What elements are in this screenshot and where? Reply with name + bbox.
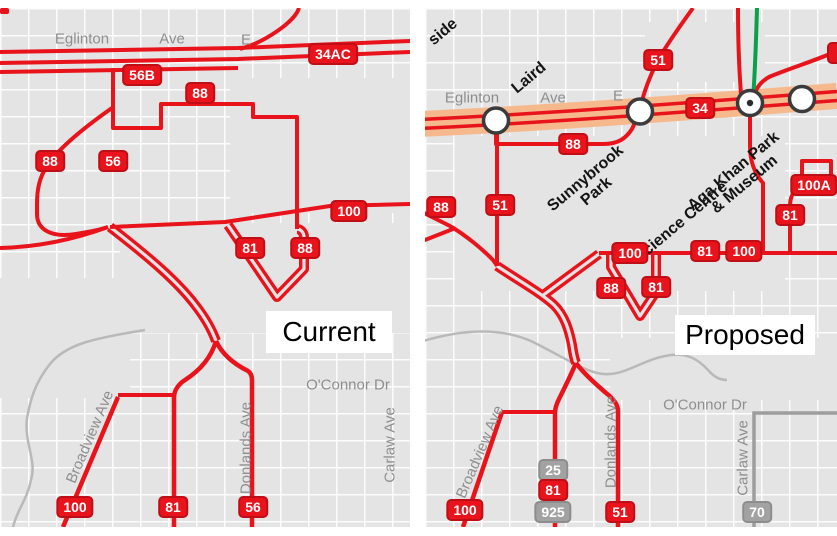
ttc-route-map-comparison: Current 34AC56B88885610081881008156Eglin…	[0, 0, 837, 536]
route-badge-51: 51	[485, 194, 515, 216]
map-panel-proposed: Proposed 51348888511008110081100A8881100…	[425, 8, 837, 527]
street-label: O'Connor Dr	[306, 377, 390, 394]
street-label: Donlands Ave	[603, 396, 620, 488]
route-badge-70: 70	[742, 501, 772, 523]
route-badge-88: 88	[35, 150, 65, 172]
street-label: E	[241, 32, 251, 49]
route-badge-88: 88	[558, 133, 588, 155]
panel-title-text: Current	[282, 316, 375, 348]
route-badge-81: 81	[690, 240, 720, 262]
street-label: E	[613, 88, 623, 105]
map-panel-current: Current 34AC56B88885610081881008156Eglin…	[0, 8, 410, 527]
station-sunnybrook-park	[628, 99, 653, 124]
route-badge-100A: 100A	[790, 174, 837, 196]
route-badge-925: 925	[534, 501, 571, 523]
street-label: Eglinton	[445, 90, 499, 107]
route-badge-88: 88	[596, 277, 626, 299]
street-label: Carlaw Ave	[735, 420, 752, 496]
route-badge-56: 56	[98, 150, 128, 172]
station-aga-khan	[790, 87, 815, 112]
route-badge-34: 34	[685, 97, 715, 119]
route-badge-81: 81	[158, 496, 188, 518]
street-label: Donlands Ave	[238, 402, 255, 494]
route-badge-cutoff	[827, 42, 837, 64]
route-badge-88: 88	[185, 82, 215, 104]
street-label: Eglinton	[55, 31, 109, 48]
route-badge-51: 51	[643, 49, 673, 71]
open-area	[230, 78, 410, 213]
route-badge-34AC: 34AC	[308, 43, 358, 65]
route-badge-56: 56	[238, 496, 268, 518]
street-label: Ave	[159, 31, 185, 48]
route-badge-100: 100	[611, 242, 648, 264]
panel-title-proposed: Proposed	[675, 315, 815, 355]
route-badge-88: 88	[290, 237, 320, 259]
street-label: Ave	[540, 90, 566, 107]
route-badge-56B: 56B	[122, 64, 162, 86]
route-badge-100: 100	[725, 240, 762, 262]
route-badge-81: 81	[641, 276, 671, 298]
cut-route-badge	[0, 8, 9, 14]
route-badge-100: 100	[56, 496, 93, 518]
route-badge-88: 88	[426, 196, 456, 218]
open-area	[0, 278, 130, 398]
panel-title-current: Current	[266, 311, 392, 353]
station-laird	[484, 108, 509, 133]
station-science-centre-interchange-dot	[747, 100, 753, 106]
street-label: Carlaw Ave	[382, 407, 399, 483]
route-badge-81: 81	[775, 204, 805, 226]
route-badge-25: 25	[538, 459, 568, 481]
route-badge-100: 100	[446, 499, 483, 521]
route-badge-51: 51	[605, 501, 635, 523]
route-badge-81: 81	[235, 237, 265, 259]
route-badge-81: 81	[538, 479, 568, 501]
route-badge-100: 100	[330, 200, 367, 222]
panel-title-text: Proposed	[685, 319, 805, 351]
street-label: O'Connor Dr	[663, 397, 747, 414]
